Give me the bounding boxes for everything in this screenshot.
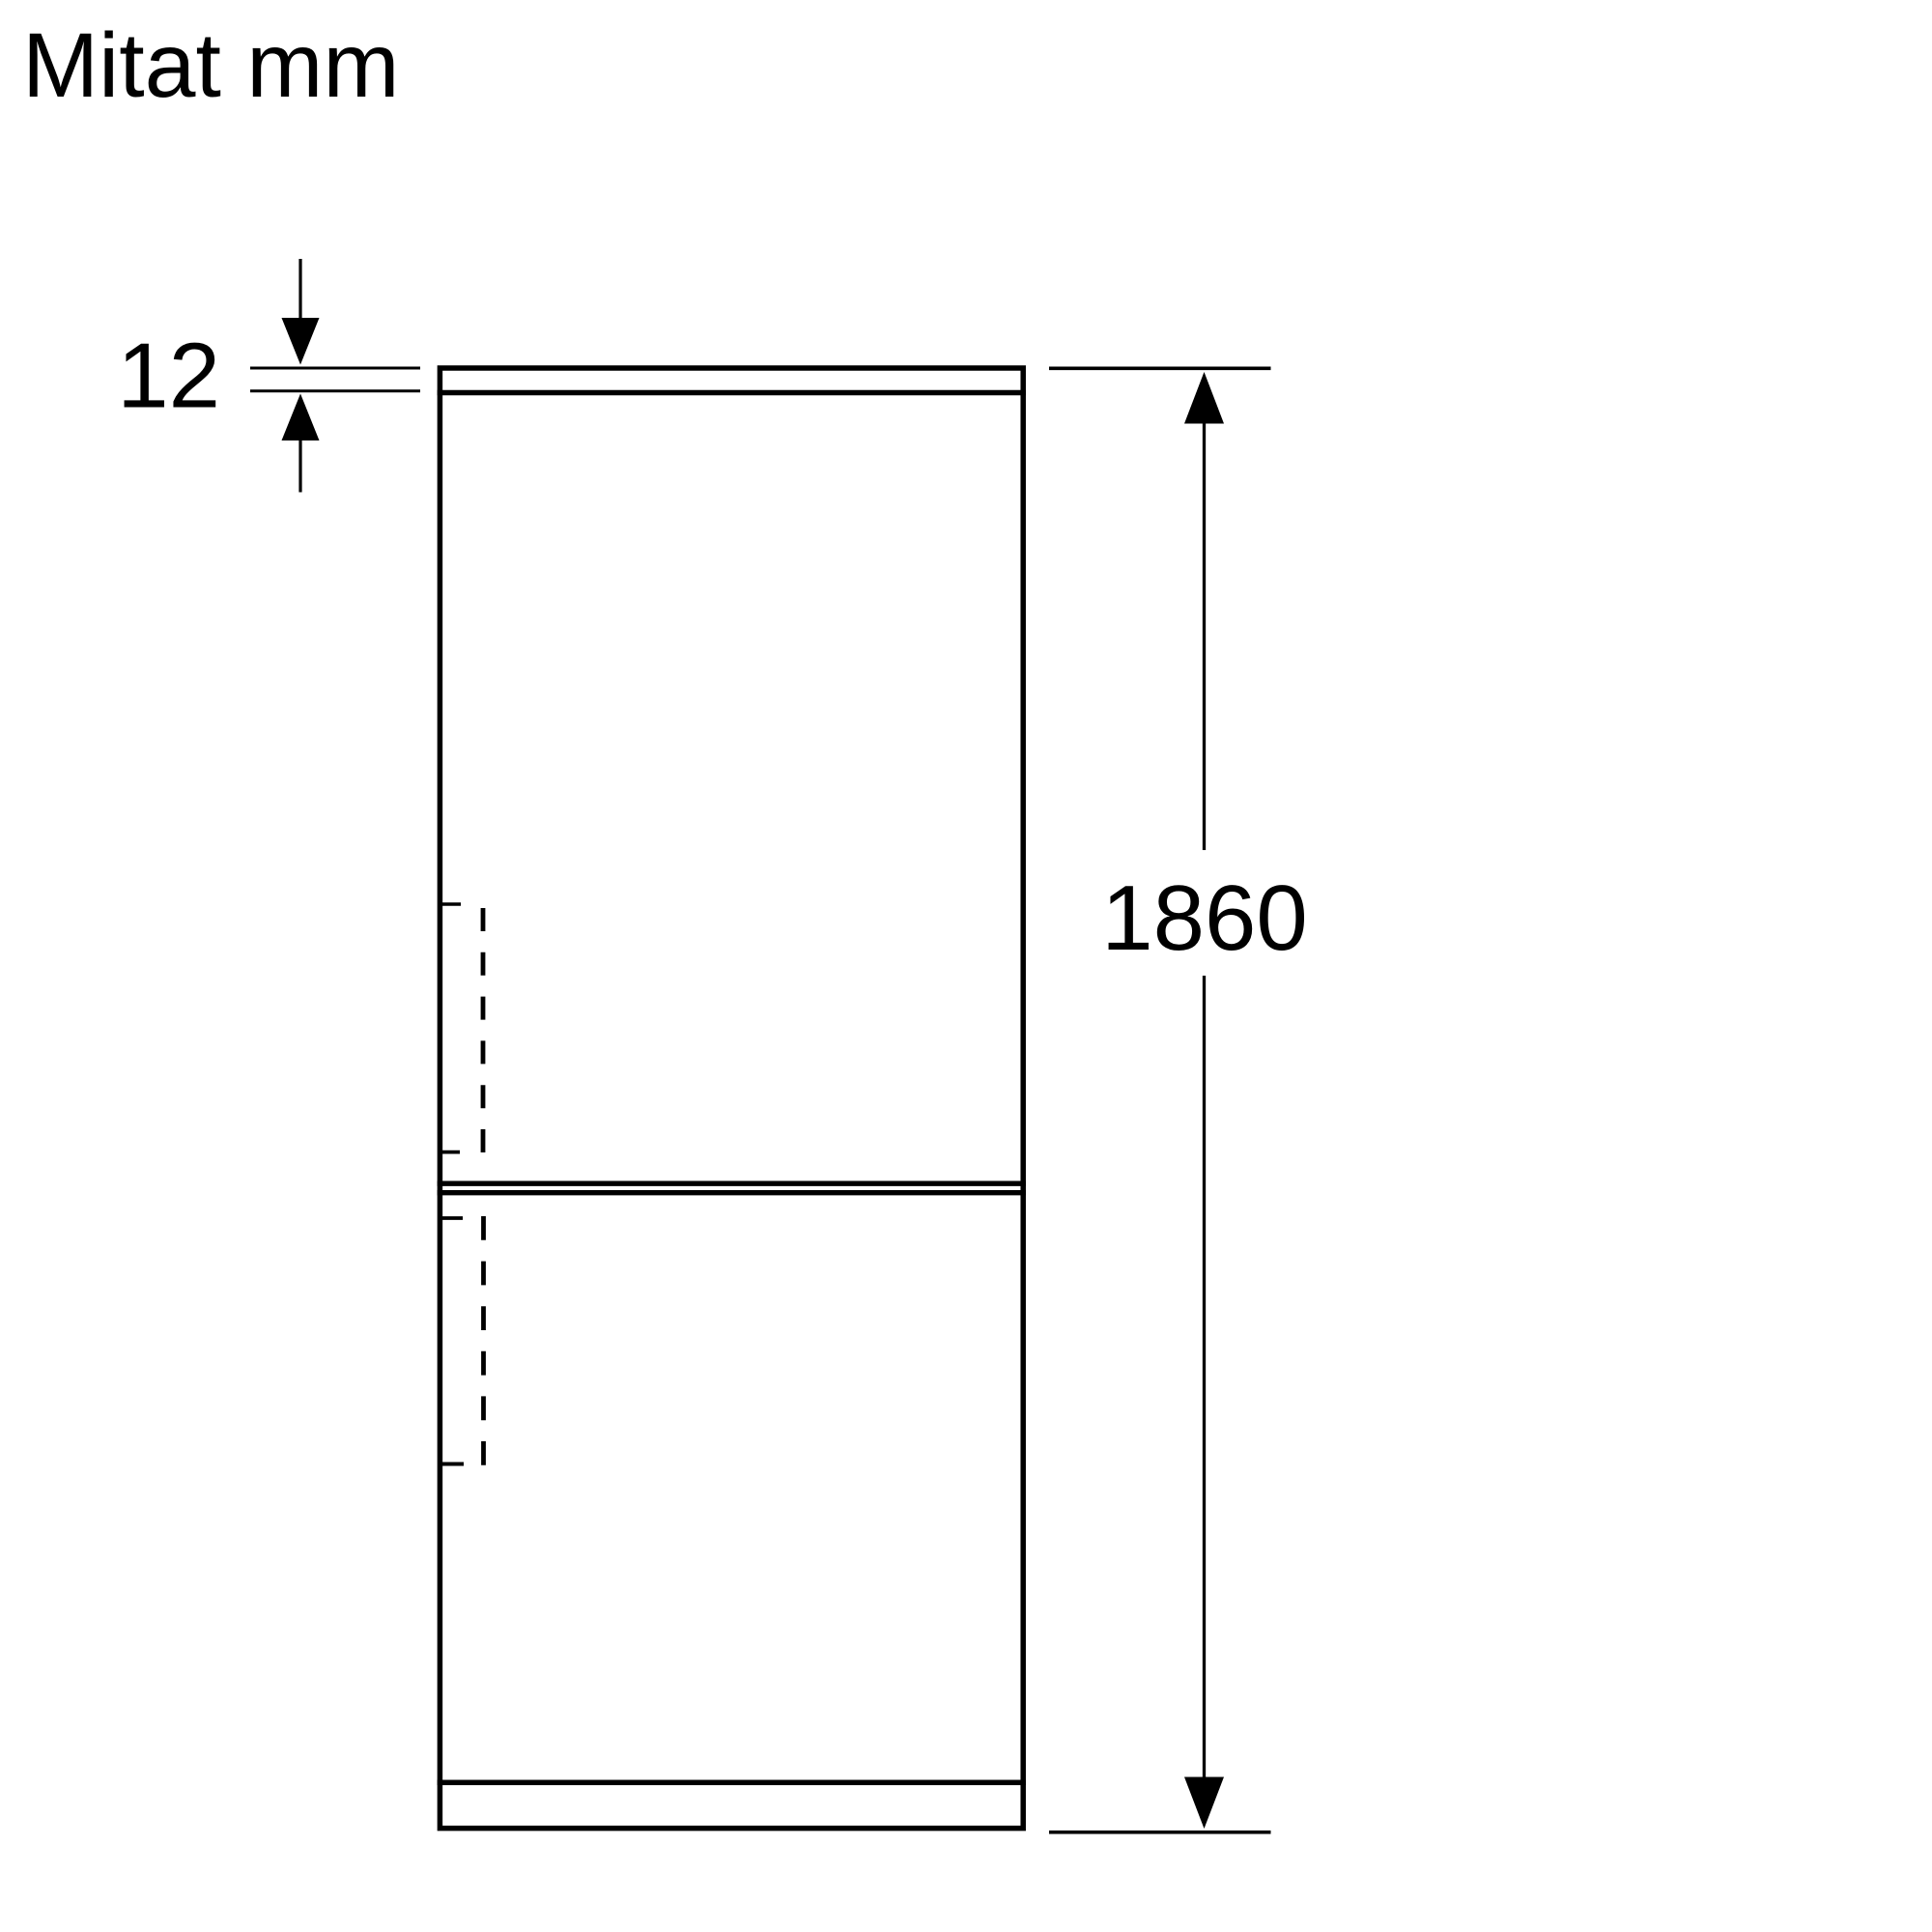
svg-text:Mitat mm: Mitat mm [22,14,400,117]
svg-text:1860: 1860 [1101,867,1308,970]
svg-text:12: 12 [117,324,220,427]
